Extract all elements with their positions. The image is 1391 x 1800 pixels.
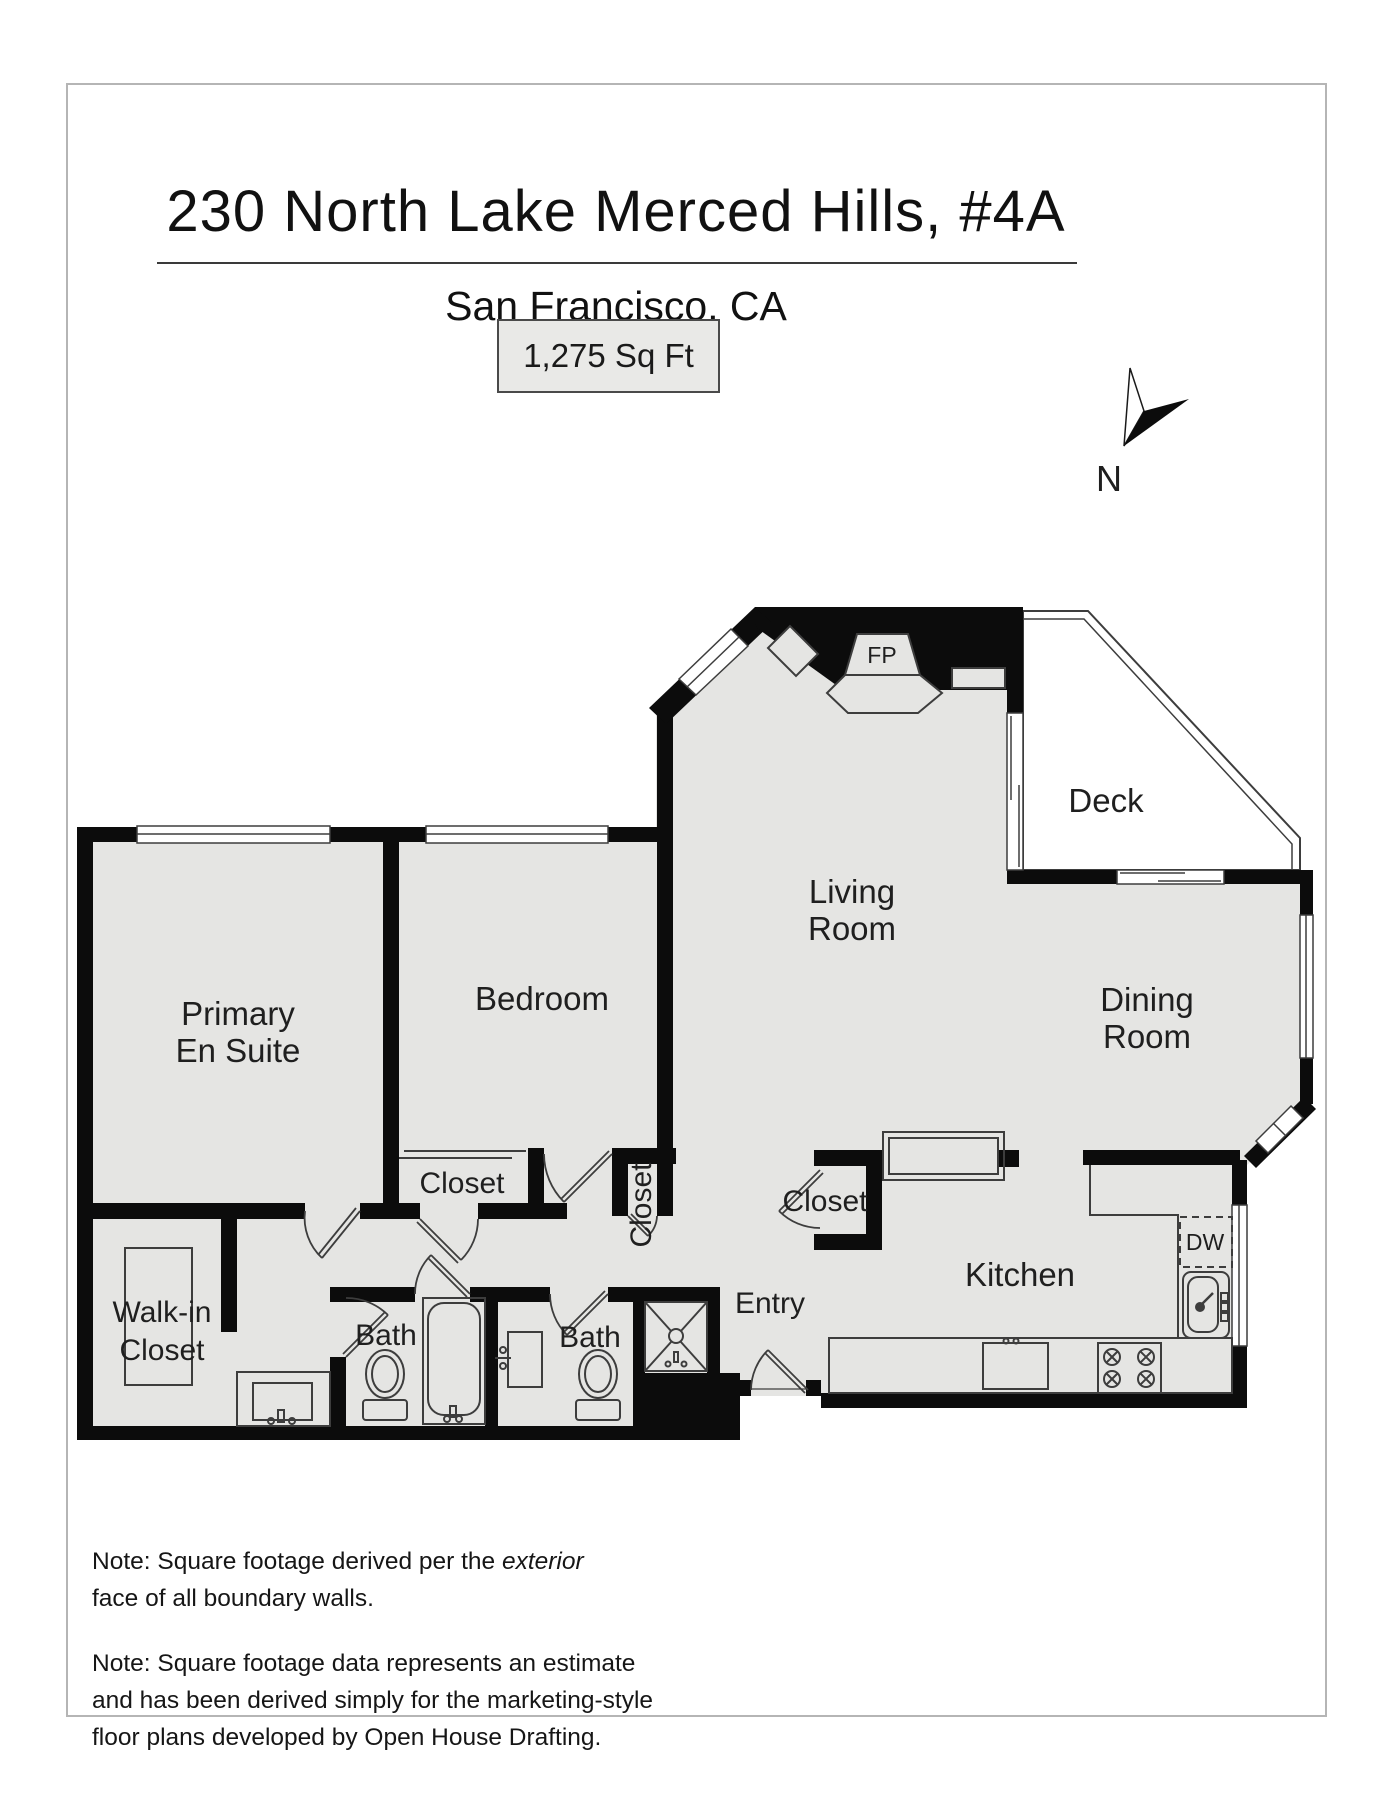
room-label-dining-line1: Dining xyxy=(1100,981,1194,1018)
room-label-primary-line2: En Suite xyxy=(176,1032,301,1069)
note-1: Note: Square footage derived per the ext… xyxy=(92,1543,692,1617)
label-fireplace: FP xyxy=(867,642,896,668)
deck-area xyxy=(1023,611,1300,870)
room-label-kitchen: Kitchen xyxy=(965,1256,1075,1293)
room-label-primary-line1: Primary xyxy=(181,995,295,1032)
wall-niche-shelf xyxy=(952,668,1005,688)
living-deck-slider xyxy=(1007,713,1023,870)
dining-deck-slider xyxy=(1117,870,1224,884)
dining-right-window xyxy=(1300,915,1313,1058)
fireplace-hearth xyxy=(827,675,942,713)
floor-plan-drawing: Primary En Suite Bedroom Living Room Dec… xyxy=(0,0,1391,1800)
note-2: Note: Square footage data represents an … xyxy=(92,1645,692,1756)
label-walkin-line1: Walk-in xyxy=(113,1296,212,1329)
note-1-line2: face of all boundary walls. xyxy=(92,1580,692,1617)
note-2-line2: and has been derived simply for the mark… xyxy=(92,1682,692,1719)
room-label-living-line2: Room xyxy=(808,910,896,947)
label-dishwasher: DW xyxy=(1186,1229,1225,1255)
note-1-italic: exterior xyxy=(502,1548,584,1575)
label-walkin-line2: Closet xyxy=(119,1334,205,1367)
note-2-line3: floor plans developed by Open House Draf… xyxy=(92,1719,692,1756)
primary-window xyxy=(137,826,330,843)
footer-notes: Note: Square footage derived per the ext… xyxy=(92,1543,692,1784)
room-label-dining-line2: Room xyxy=(1103,1018,1191,1055)
label-bath-primary: Bath xyxy=(355,1319,417,1352)
label-closet-entry: Closet xyxy=(782,1185,868,1218)
room-label-bedroom: Bedroom xyxy=(475,980,609,1017)
room-label-entry: Entry xyxy=(735,1287,805,1320)
floor-plan-page: 230 North Lake Merced Hills, #4A San Fra… xyxy=(0,0,1391,1800)
room-label-deck: Deck xyxy=(1068,782,1144,819)
kitchen-window xyxy=(1232,1205,1247,1346)
label-closet-bedroom: Closet xyxy=(419,1167,505,1200)
note-1-text: Note: Square footage derived per the xyxy=(92,1548,502,1575)
room-label-living-line1: Living xyxy=(809,873,895,910)
bedroom-window xyxy=(426,826,608,843)
label-bath-hall: Bath xyxy=(559,1321,621,1354)
note-2-line1: Note: Square footage data represents an … xyxy=(92,1645,692,1682)
label-closet-hall: Closet xyxy=(625,1162,658,1248)
